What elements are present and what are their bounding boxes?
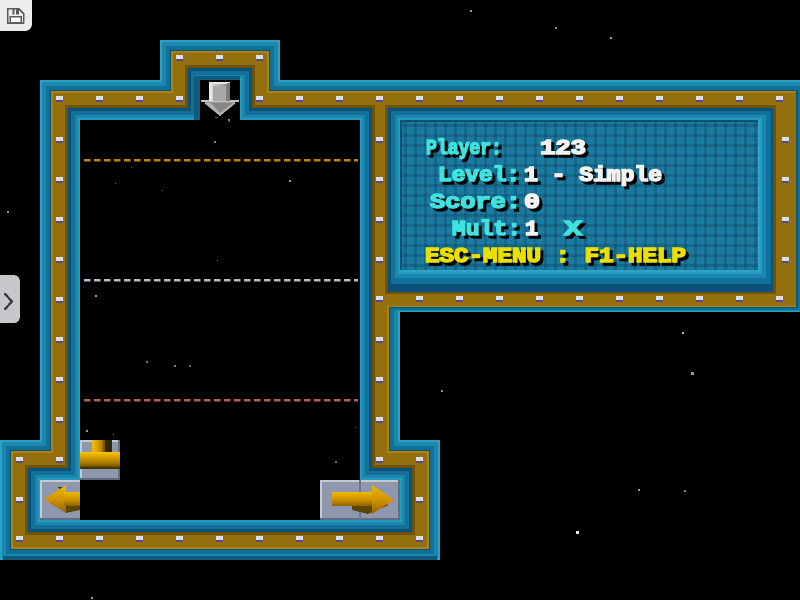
svg-text:0: 0 [524, 192, 540, 215]
svg-text:Mult:: Mult: [452, 219, 521, 242]
svg-text:Score:: Score: [430, 192, 521, 215]
svg-text:ESC-MENU : F1-HELP: ESC-MENU : F1-HELP [425, 246, 686, 269]
svg-text:Player:: Player: [426, 138, 502, 161]
svg-text:X: X [564, 219, 583, 242]
svg-text:Level:: Level: [438, 165, 520, 188]
svg-text:1: 1 [525, 219, 538, 242]
svg-text:123: 123 [540, 138, 586, 161]
svg-text:1 - Simple: 1 - Simple [524, 165, 662, 188]
